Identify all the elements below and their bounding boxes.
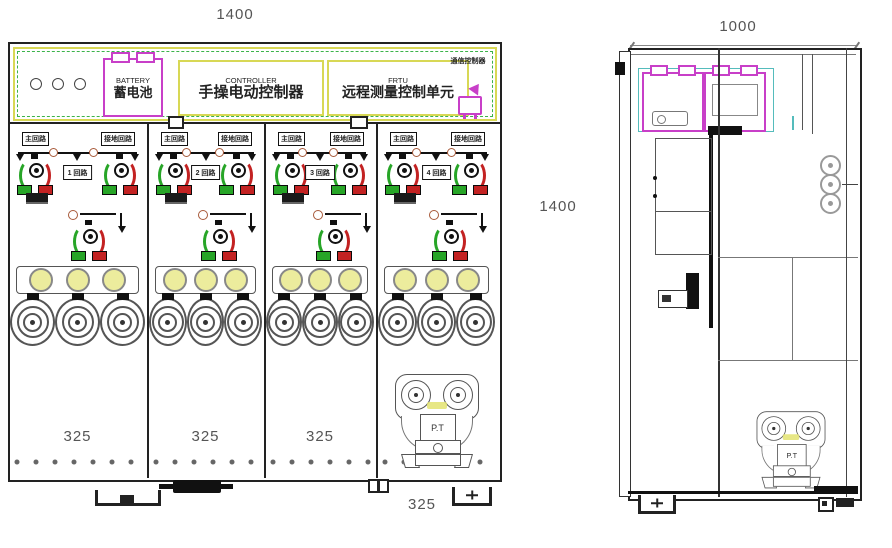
comm-controller-label: 通信控制器 (444, 58, 492, 66)
cable-bushings (149, 298, 262, 346)
base-latch (173, 480, 221, 493)
panel-width-dimension: 325 (147, 428, 264, 445)
load-switch-icon (388, 158, 418, 188)
cable-bushings (378, 298, 495, 346)
nameplate (394, 193, 416, 204)
bushing-icon (187, 298, 225, 346)
lamp-icon (66, 268, 90, 292)
vent-hole-icon (820, 174, 841, 195)
lamp-icon (308, 268, 332, 292)
switchgear-drawing: 1400 1400 BATTERY 蓄电池 CONTROLLER 手操电动控制器… (0, 0, 892, 548)
cable-line (812, 54, 813, 134)
rear-wall-tick (842, 184, 858, 185)
compartment-divider (718, 257, 858, 258)
front-width-dimension: 1400 (190, 6, 280, 23)
indicator-lamp-strip (155, 266, 256, 294)
switch-panel-2: 主回路 接地回路 2 回路 325 (147, 122, 264, 478)
lamp-icon (393, 268, 417, 292)
base-channel-foot (452, 487, 492, 506)
earth-circuit-label: 接地回路 (101, 132, 135, 146)
compartment-divider (792, 257, 793, 360)
circuit-number-label: 4 回路 (422, 165, 452, 180)
pt-bushing-icon (796, 416, 821, 441)
vent-hole-icon (74, 78, 86, 90)
hinge-icon (615, 62, 625, 75)
earth-switch-icon (105, 158, 135, 188)
cable-bushings (266, 298, 374, 346)
bushing-icon (456, 298, 495, 346)
circuit-number-label: 3 回路 (305, 165, 335, 180)
vent-hole-icon (820, 155, 841, 176)
front-height-dimension: 1400 (528, 198, 588, 215)
circuit-number-label: 1 回路 (63, 165, 93, 180)
lamp-icon (279, 268, 303, 292)
compartment-divider (718, 360, 858, 361)
lamp-icon (338, 268, 362, 292)
circuit-number-label: 2 回路 (191, 165, 221, 180)
switch-panel-1: 主回路 接地回路 1 回路 325 (8, 122, 147, 478)
battery-label-en: BATTERY (116, 76, 150, 85)
cable-line (802, 54, 803, 130)
internal-wall (718, 48, 720, 497)
earth-switch-icon (222, 158, 252, 188)
battery-icon (704, 72, 766, 132)
pt-bushing-icon (443, 380, 473, 410)
base-blocks (814, 486, 858, 494)
main-circuit-label: 主回路 (390, 132, 417, 146)
bushing-icon (100, 298, 145, 346)
vent-hole-icon (820, 193, 841, 214)
panel-width-dimension: 325 (392, 496, 452, 513)
front-door-profile (619, 51, 631, 497)
separator-clip (168, 116, 184, 129)
bushing-icon (378, 298, 417, 346)
dimension-line (630, 45, 858, 46)
switch-panel-3: 主回路 接地回路 3 回路 325 (264, 122, 376, 478)
main-circuit-label: 主回路 (22, 132, 49, 146)
indicator-lamp-strip (272, 266, 368, 294)
indicator-lamp-strip (16, 266, 139, 294)
pt-transformer: P.T (394, 370, 480, 474)
bolt-row (152, 458, 259, 467)
lower-switch-icon (66, 210, 128, 262)
side-view: 1000 P.T (616, 18, 886, 538)
bushing-icon (10, 298, 55, 346)
rear-wall (846, 48, 847, 497)
load-switch-icon (20, 158, 50, 188)
load-switch-icon (276, 158, 306, 188)
load-switch-icon (159, 158, 189, 188)
panel-divider (264, 122, 266, 478)
cable-line (792, 116, 794, 130)
base-channel-foot (638, 495, 676, 514)
battery-mount (708, 126, 742, 135)
battery-box: BATTERY 蓄电池 (103, 58, 163, 117)
pt-label: P.T (420, 414, 456, 442)
base-clip (378, 479, 389, 493)
panel-divider (376, 122, 378, 478)
frtu-label-zh: 远程测量控制单元 (342, 85, 454, 100)
earth-circuit-label: 接地回路 (451, 132, 485, 146)
pt-label: P.T (777, 444, 807, 467)
base-block (836, 498, 854, 507)
nameplate (282, 193, 304, 204)
lamp-icon (163, 268, 187, 292)
side-width-dimension: 1000 (708, 18, 768, 35)
vent-hole-icon (30, 78, 42, 90)
bushing-icon (224, 298, 262, 346)
separator-clip (350, 116, 368, 129)
lamp-icon (194, 268, 218, 292)
nameplate (26, 193, 48, 204)
lamp-icon (425, 268, 449, 292)
pt-transformer: P.T (756, 408, 827, 493)
lamp-icon (456, 268, 480, 292)
bushing-icon (149, 298, 187, 346)
earth-circuit-label: 接地回路 (218, 132, 252, 146)
bushing-icon (338, 298, 374, 346)
indicator-lamp-strip (384, 266, 489, 294)
bushing-icon (55, 298, 100, 346)
vent-hole-icon (52, 78, 64, 90)
cable-bushings (10, 298, 145, 346)
battery-icon (642, 72, 704, 132)
lamp-icon (102, 268, 126, 292)
bushing-icon (266, 298, 302, 346)
main-circuit-label: 主回路 (278, 132, 305, 146)
nameplate (165, 193, 187, 204)
mechanism-plate (655, 138, 712, 255)
battery-label-zh: 蓄电池 (113, 85, 152, 100)
earth-circuit-label: 接地回路 (330, 132, 364, 146)
lamp-icon (29, 268, 53, 292)
controller-label-zh: 手操电动控制器 (198, 85, 303, 100)
bushing-icon (302, 298, 338, 346)
bolt-row (13, 458, 142, 467)
comm-controller-icon (458, 96, 482, 115)
lower-switch-icon (196, 210, 258, 262)
controller-box: CONTROLLER 手操电动控制器 (178, 60, 324, 116)
panel-divider (147, 122, 149, 478)
base-channel-foot (95, 490, 161, 506)
bolt-row (269, 458, 371, 467)
lower-switch-icon (311, 210, 373, 262)
base-clip (818, 497, 834, 512)
switch-panel-4: 主回路 接地回路 4 回路 P.T (376, 122, 497, 478)
handle-icon (658, 290, 688, 308)
main-circuit-label: 主回路 (161, 132, 188, 146)
panel-width-dimension: 325 (8, 428, 147, 445)
lamp-icon (224, 268, 248, 292)
frtu-box: FRTU 远程测量控制单元 (327, 60, 469, 116)
lower-switch-icon (427, 210, 489, 262)
bushing-icon (417, 298, 456, 346)
earth-switch-icon (455, 158, 485, 188)
earth-switch-icon (334, 158, 364, 188)
panel-width-dimension: 325 (264, 428, 376, 445)
